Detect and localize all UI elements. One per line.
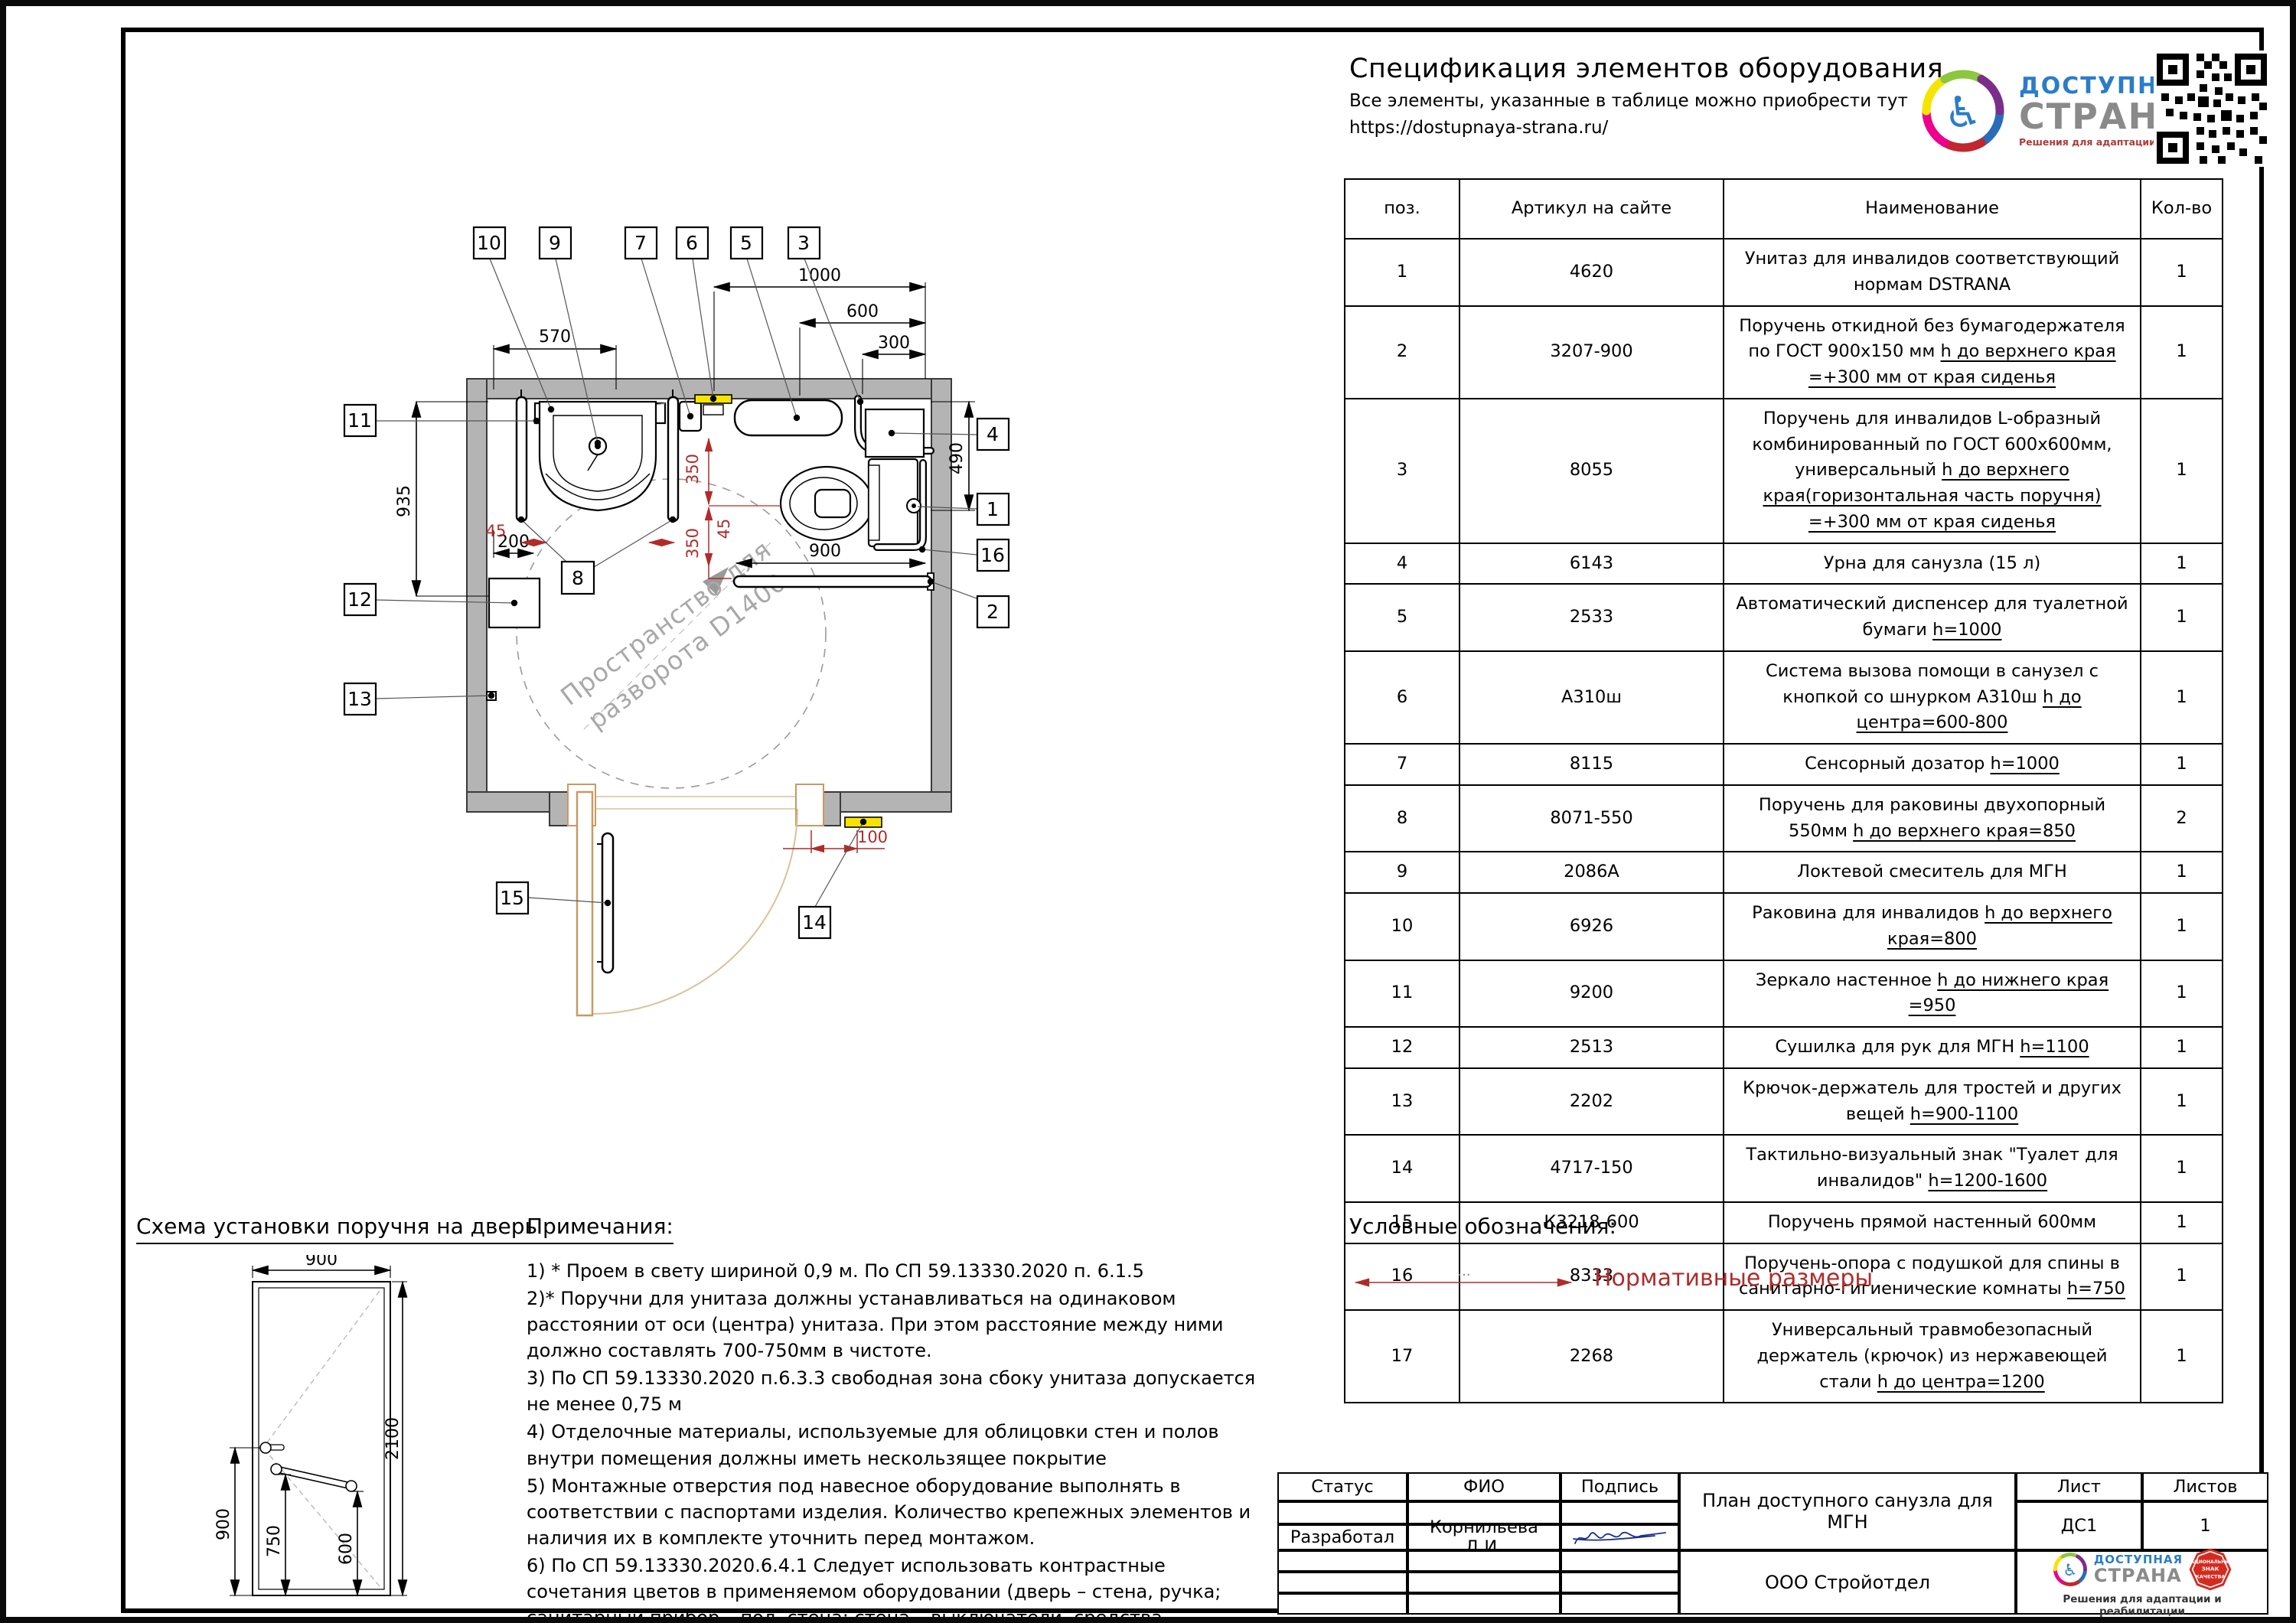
svg-text:350: 350 (683, 528, 702, 559)
door-schema-heading: Схема установки поручня на дверь (136, 1214, 537, 1244)
spec-row: 46143Урна для санузла (15 л)1 (1345, 543, 2223, 585)
spec-cell-pos: 3 (1345, 399, 1459, 543)
tb-sheets-label: Листов (2142, 1472, 2268, 1501)
svg-text:2100: 2100 (383, 1417, 403, 1460)
spec-cell-pos: 2 (1345, 306, 1459, 399)
spec-cell-art: 2533 (1459, 584, 1724, 651)
svg-text:2: 2 (987, 601, 999, 623)
svg-text:570: 570 (539, 328, 571, 347)
svg-text:4: 4 (987, 423, 999, 445)
spec-col-name: Наименование (1724, 179, 2141, 239)
svg-text:9: 9 (549, 232, 561, 254)
spec-cell-art: 4717-150 (1459, 1135, 1724, 1202)
turning-circle: Пространство для разворота D1400 (517, 479, 826, 788)
spec-cell-name: Зеркало настенное h до нижнего края =950 (1724, 960, 2141, 1028)
spec-cell-name: Тактильно-визуальный знак "Туалет для ин… (1724, 1135, 2141, 1202)
tb-empty (1561, 1572, 1679, 1593)
svg-text:1: 1 (987, 498, 999, 520)
svg-text:5: 5 (740, 232, 752, 254)
legend-label: Нормативные размеры (1594, 1265, 1873, 1292)
brand-ring-icon: ♿ (1918, 66, 2008, 156)
tb-sheets-value: 1 (2142, 1501, 2268, 1550)
svg-text:45: 45 (486, 522, 507, 540)
spec-cell-pos: 13 (1345, 1068, 1459, 1136)
spec-cell-qty: 1 (2141, 1243, 2223, 1311)
quality-mark-icon: НАЦИОНАЛЬНЫЙ ЗНАК КАЧЕСТВА (2188, 1547, 2232, 1592)
spec-row: 172268Универсальный травмобезопасный дер… (1345, 1310, 2223, 1403)
tb-sign-header: Подпись (1561, 1472, 1679, 1501)
tb-empty (1407, 1550, 1561, 1572)
title-block: Статус ФИО Подпись Разработал Корнильева… (1277, 1472, 2268, 1615)
spec-row: 106926Раковина для инвалидов h до верхне… (1345, 893, 2223, 960)
paper-dispenser (735, 400, 842, 435)
flush-button (907, 499, 921, 513)
spec-cell-qty: 1 (2141, 239, 2223, 306)
door-leaf (577, 792, 592, 1015)
tb-doc-title: План доступного санузла для МГН (1679, 1472, 2016, 1550)
toilet (781, 459, 918, 546)
spec-cell-qty: 1 (2141, 744, 2223, 785)
tb-developer-name: Корнильева Д.И. (1407, 1524, 1561, 1550)
spec-cell-qty: 1 (2141, 651, 2223, 744)
spec-col-art: Артикул на сайте (1459, 179, 1724, 239)
notes-title: Примечания: (527, 1214, 673, 1244)
spec-cell-art: 2202 (1459, 1068, 1724, 1136)
floor-plan: Пространство для разворота D1400 (236, 201, 1124, 1081)
signature (1570, 1527, 1670, 1548)
svg-text:600: 600 (846, 302, 879, 321)
tb-empty (1277, 1550, 1407, 1572)
folding-grab-bar (734, 573, 934, 590)
spec-row: 78115Сенсорный дозатор h=10001 (1345, 744, 2223, 785)
svg-text:6: 6 (686, 232, 698, 254)
svg-text:♿: ♿ (2063, 1560, 2077, 1579)
note-line: 4) Отделочные материалы, используемые дл… (527, 1419, 1261, 1471)
spec-cell-name: Сенсорный дозатор h=1000 (1724, 744, 2141, 785)
tb-empty (1561, 1501, 1679, 1524)
tb-empty (1277, 1572, 1407, 1593)
spec-col-pos: поз. (1345, 179, 1459, 239)
svg-text:935: 935 (395, 485, 414, 517)
spec-cell-pos: 8 (1345, 785, 1459, 852)
note-line: 6) По СП 59.13330.2020.6.4.1 Следует исп… (527, 1553, 1261, 1623)
svg-text:КАЧЕСТВА: КАЧЕСТВА (2196, 1573, 2226, 1579)
legend-dots: ... (1457, 1267, 1470, 1279)
svg-text:ЗНАК: ЗНАК (2202, 1566, 2219, 1572)
spec-row: 23207-900Поручень откидной без бумагодер… (1345, 306, 2223, 399)
svg-text:14: 14 (802, 911, 827, 934)
spec-row: 132202Крючок-держатель для тростей и дру… (1345, 1068, 2223, 1136)
spec-cell-name: Поручень откидной без бумагодержателя по… (1724, 306, 2141, 399)
note-line: 1) * Проем в свету шириной 0,9 м. По СП … (527, 1258, 1261, 1284)
svg-text:16: 16 (980, 544, 1005, 566)
spec-cell-art: 8115 (1459, 744, 1724, 785)
spec-cell-art: 2086А (1459, 852, 1724, 893)
spec-cell-qty: 1 (2141, 852, 2223, 893)
spec-row: 88071-550Поручень для раковины двухопорн… (1345, 785, 2223, 852)
spec-cell-pos: 9 (1345, 852, 1459, 893)
note-line: 3) По СП 59.13330.2020 п.6.3.3 свободная… (527, 1365, 1261, 1417)
spec-cell-pos: 12 (1345, 1027, 1459, 1068)
tb-sheet-label: Лист (2016, 1472, 2142, 1501)
svg-text:300: 300 (878, 334, 910, 353)
note-line: 2)* Поручни для унитаза должны устанавли… (527, 1286, 1261, 1364)
spec-cell-art: 2268 (1459, 1310, 1724, 1403)
spec-cell-art: 4620 (1459, 239, 1724, 306)
door-schema-title: Схема установки поручня на дверь (136, 1214, 537, 1244)
spec-row: 119200Зеркало настенное h до нижнего кра… (1345, 960, 2223, 1028)
tb-signature-cell (1561, 1524, 1679, 1550)
spec-cell-name: Автоматический диспенсер для туалетной б… (1724, 584, 2141, 651)
spec-cell-pos: 6 (1345, 651, 1459, 744)
tb-status-header: Статус (1277, 1472, 1407, 1501)
svg-text:100: 100 (857, 828, 888, 846)
svg-text:350: 350 (683, 454, 702, 484)
door-handle (260, 1442, 271, 1453)
spec-row: 14620Унитаз для инвалидов соответствующи… (1345, 239, 2223, 306)
svg-text:600: 600 (337, 1533, 356, 1565)
svg-text:900: 900 (305, 1255, 338, 1269)
tb-company: ООО Стройотдел (1679, 1550, 2016, 1615)
spec-cell-pos: 10 (1345, 893, 1459, 960)
tb-empty (1277, 1501, 1407, 1524)
sink (540, 402, 656, 510)
spec-cell-pos: 4 (1345, 543, 1459, 585)
spec-cell-name: Локтевой смеситель для МГН (1724, 852, 2141, 893)
door (568, 784, 823, 1015)
spec-row: 38055Поручень для инвалидов L-образный к… (1345, 399, 2223, 543)
svg-text:7: 7 (634, 232, 647, 254)
spec-cell-name: Крючок-держатель для тростей и других ве… (1724, 1068, 2141, 1136)
svg-text:8: 8 (572, 567, 584, 589)
door-schema: 900 2100 900 750 600 (176, 1255, 513, 1616)
spec-cell-pos: 17 (1345, 1310, 1459, 1403)
spec-cell-qty: 1 (2141, 584, 2223, 651)
tb-developed-label: Разработал (1277, 1524, 1407, 1550)
notes-heading: Примечания: (527, 1214, 673, 1244)
spec-cell-name: Сушилка для рук для МГН h=1100 (1724, 1027, 2141, 1068)
spec-cell-art: 6143 (1459, 543, 1724, 585)
spec-cell-qty: 1 (2141, 960, 2223, 1028)
spec-cell-name: Универсальный травмобезопасный держатель… (1724, 1310, 2141, 1403)
spec-cell-pos: 1 (1345, 239, 1459, 306)
tb-empty (1407, 1593, 1561, 1615)
spec-cell-pos: 11 (1345, 960, 1459, 1028)
svg-text:10: 10 (477, 232, 501, 254)
svg-text:13: 13 (347, 688, 372, 710)
svg-text:11: 11 (347, 409, 372, 432)
tb-brand-tagline: Решения для адаптации и реабилитации (2019, 1593, 2265, 1618)
spec-cell-pos: 5 (1345, 584, 1459, 651)
door-diagonal-bar (346, 1481, 357, 1491)
tb-fio-header: ФИО (1407, 1472, 1561, 1501)
legend-arrow: ... (1349, 1267, 1579, 1293)
spec-cell-art: 2513 (1459, 1027, 1724, 1068)
tb-empty (1561, 1593, 1679, 1615)
spec-cell-name: Система вызова помощи в санузел с кнопко… (1724, 651, 2141, 744)
spec-cell-art: 8071-550 (1459, 785, 1724, 852)
spec-cell-pos: 14 (1345, 1135, 1459, 1202)
spec-cell-qty: 1 (2141, 1027, 2223, 1068)
svg-text:900: 900 (214, 1508, 233, 1540)
spec-cell-name: Урна для санузла (15 л) (1724, 543, 2141, 585)
spec-row: 6А310шСистема вызова помощи в санузел с … (1345, 651, 2223, 744)
brand-ring-icon-small: ♿ (2052, 1551, 2089, 1588)
tb-logos: ♿ ДОСТУПНАЯ СТРАНА НАЦИОНАЛЬНЫЙ ЗНАК КАЧ… (2016, 1550, 2268, 1615)
note-line: 5) Монтажные отверстия под навесное обор… (527, 1473, 1261, 1551)
spec-cell-qty: 1 (2141, 893, 2223, 960)
spec-cell-name: Поручень для инвалидов L-образный комбин… (1724, 399, 2141, 543)
spec-cell-qty: 2 (2141, 785, 2223, 852)
spec-col-qty: Кол-во (2141, 179, 2223, 239)
spec-row: 122513Сушилка для рук для МГН h=11001 (1345, 1027, 2223, 1068)
legend-title: Условные обозначения: (1349, 1214, 1616, 1244)
svg-text:НАЦИОНАЛЬНЫЙ: НАЦИОНАЛЬНЫЙ (2188, 1558, 2232, 1565)
spec-cell-art: 9200 (1459, 960, 1724, 1028)
spec-cell-name: Раковина для инвалидов h до верхнего кра… (1724, 893, 2141, 960)
qr-code (2154, 51, 2270, 167)
spec-cell-name: Унитаз для инвалидов соответствующий нор… (1724, 239, 2141, 306)
spec-cell-pos: 7 (1345, 744, 1459, 785)
tb-brand-name-2: СТРАНА (2094, 1566, 2183, 1585)
spec-cell-qty: 1 (2141, 543, 2223, 585)
tb-empty (1407, 1572, 1561, 1593)
spec-row: 52533Автоматический диспенсер для туалет… (1345, 584, 2223, 651)
spec-cell-qty: 1 (2141, 1310, 2223, 1403)
legend-heading: Условные обозначения: (1349, 1214, 1616, 1244)
spec-cell-art: А310ш (1459, 651, 1724, 744)
spec-cell-art: 3207-900 (1459, 306, 1724, 399)
svg-text:750: 750 (265, 1525, 284, 1557)
spec-cell-qty: 1 (2141, 1135, 2223, 1202)
svg-text:15: 15 (500, 887, 524, 909)
svg-text:3: 3 (797, 232, 810, 254)
spec-cell-name: Поручень для раковины двухопорный 550мм … (1724, 785, 2141, 852)
spec-cell-qty: 1 (2141, 306, 2223, 399)
notes-list: 1) * Проем в свету шириной 0,9 м. По СП … (527, 1258, 1261, 1623)
tb-empty (1277, 1593, 1407, 1615)
svg-text:1000: 1000 (798, 266, 841, 285)
spec-cell-name: Поручень прямой настенный 600мм (1724, 1202, 2141, 1243)
tb-empty (1561, 1550, 1679, 1572)
spec-cell-art: 8055 (1459, 399, 1724, 543)
spec-row: 144717-150Тактильно-визуальный знак "Туа… (1345, 1135, 2223, 1202)
spec-row: 92086АЛоктевой смеситель для МГН1 (1345, 852, 2223, 893)
wheelchair-icon: ♿ (1944, 88, 1982, 138)
svg-text:490: 490 (947, 442, 967, 474)
spec-cell-qty: 1 (2141, 1068, 2223, 1136)
svg-text:12: 12 (347, 588, 372, 611)
svg-text:45: 45 (715, 519, 733, 539)
spec-header-row: поз. Артикул на сайте Наименование Кол-в… (1345, 179, 2223, 239)
tb-sheet-value: ДС1 (2016, 1501, 2142, 1550)
spec-cell-art: 6926 (1459, 893, 1724, 960)
svg-text:900: 900 (809, 542, 841, 561)
spec-cell-qty: 1 (2141, 399, 2223, 543)
door-swing-arc (592, 809, 797, 1014)
drawing-sheet: Спецификация элементов оборудования Все … (0, 0, 2296, 1623)
spec-cell-qty: 1 (2141, 1202, 2223, 1243)
